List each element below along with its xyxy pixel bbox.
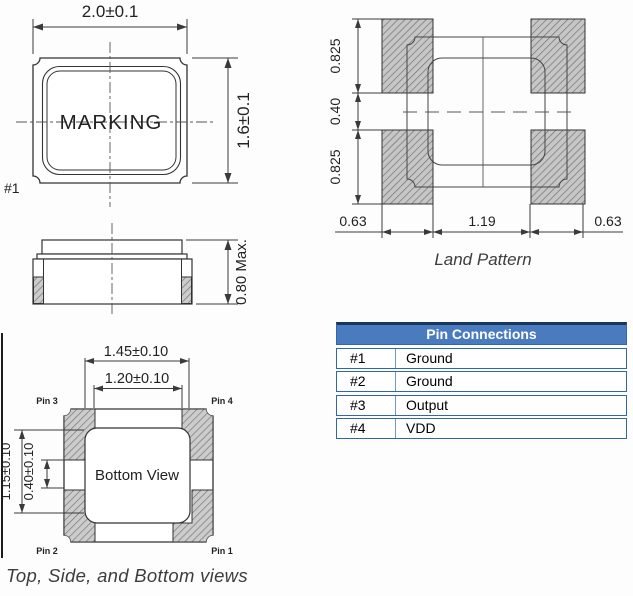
land-pad-width-left-dim: 0.63 (339, 213, 366, 229)
land-pad-bottom-right (531, 130, 585, 204)
side-terminal-left (34, 277, 44, 304)
land-cavity-outline (428, 58, 545, 165)
pin-table-header: Pin Connections (336, 322, 627, 345)
arrowhead (225, 294, 232, 304)
bottom-outer-width-dim: 1.45±0.10 (104, 344, 168, 360)
pin3-label: Pin 3 (36, 396, 58, 406)
table-row: #4 VDD (336, 418, 627, 439)
top-view-width-dim: 2.0±0.1 (82, 2, 139, 21)
table-row: #1 Ground (336, 348, 627, 369)
top-view-drawing: 2.0±0.1 MARKING 1.6±0.1 #1 (0, 0, 270, 215)
marking-text: MARKING (60, 111, 163, 134)
arrowhead (44, 479, 50, 488)
package-drawing-page: 2.0±0.1 MARKING 1.6±0.1 #1 (0, 0, 633, 596)
pin-number-cell: #1 (337, 349, 396, 368)
land-gap-height-dim: 0.40 (327, 98, 343, 125)
bottom-inner-height-dim: 0.40±0.10 (21, 443, 36, 501)
top-view-height-dim: 1.6±0.1 (234, 92, 253, 149)
pin-number-cell: #2 (337, 372, 396, 391)
land-pad-span-dim: 1.19 (468, 213, 495, 229)
bottom-view-label: Bottom View (95, 467, 179, 484)
land-pad-height-top-dim: 0.825 (327, 38, 343, 73)
pin-number-cell: #3 (337, 396, 396, 415)
pin2-label: Pin 2 (36, 546, 58, 556)
arrowhead (85, 358, 94, 364)
pin-connection-cell: VDD (396, 419, 626, 438)
land-pattern-caption: Land Pattern (333, 250, 633, 270)
bottom-view-drawing: 1.45±0.10 1.20±0.10 Pin 3 Pin 4 Pin 2 Pi… (0, 330, 270, 565)
land-pad-top-right (531, 19, 585, 93)
pin4-label: Pin 4 (211, 396, 233, 406)
arrowhead (19, 430, 25, 439)
arrowhead (19, 504, 25, 513)
side-terminal-right (182, 277, 192, 304)
land-left-dim-lines (352, 19, 382, 204)
side-view-height-dim: 0.80 Max. (233, 239, 250, 305)
top-height-dim-lines (192, 58, 238, 183)
pin-connections-table: Pin Connections #1 Ground #2 Ground #3 O… (336, 322, 627, 439)
arrowhead (94, 386, 103, 392)
arrowhead (225, 58, 232, 68)
pin-connection-cell: Output (396, 396, 626, 415)
pin-connection-cell: Ground (396, 372, 626, 391)
land-pattern-drawing: 0.825 0.40 0.825 0.63 1.19 0.63 (325, 0, 633, 245)
table-row: #3 Output (336, 395, 627, 416)
pin1-label: Pin 1 (211, 546, 233, 556)
side-body (33, 240, 192, 304)
land-pad-height-bottom-dim: 0.825 (327, 149, 343, 184)
arrowhead (180, 358, 189, 364)
figure-edge-line (1, 333, 3, 558)
views-caption: Top, Side, and Bottom views (6, 565, 248, 587)
land-pad-width-right-dim: 0.63 (594, 213, 621, 229)
arrowhead (225, 240, 232, 250)
side-view-drawing: 0.80 Max. (0, 215, 270, 330)
arrowhead (173, 386, 182, 392)
arrowhead (44, 460, 50, 469)
arrowhead (33, 24, 43, 31)
pin-number-cell: #4 (337, 419, 396, 438)
arrowhead (177, 24, 187, 31)
pin-connection-cell: Ground (396, 349, 626, 368)
bottom-inner-width-dim: 1.20±0.10 (105, 371, 169, 387)
pin1-reference-label: #1 (4, 180, 20, 196)
arrowhead (225, 173, 232, 183)
table-row: #2 Ground (336, 371, 627, 392)
